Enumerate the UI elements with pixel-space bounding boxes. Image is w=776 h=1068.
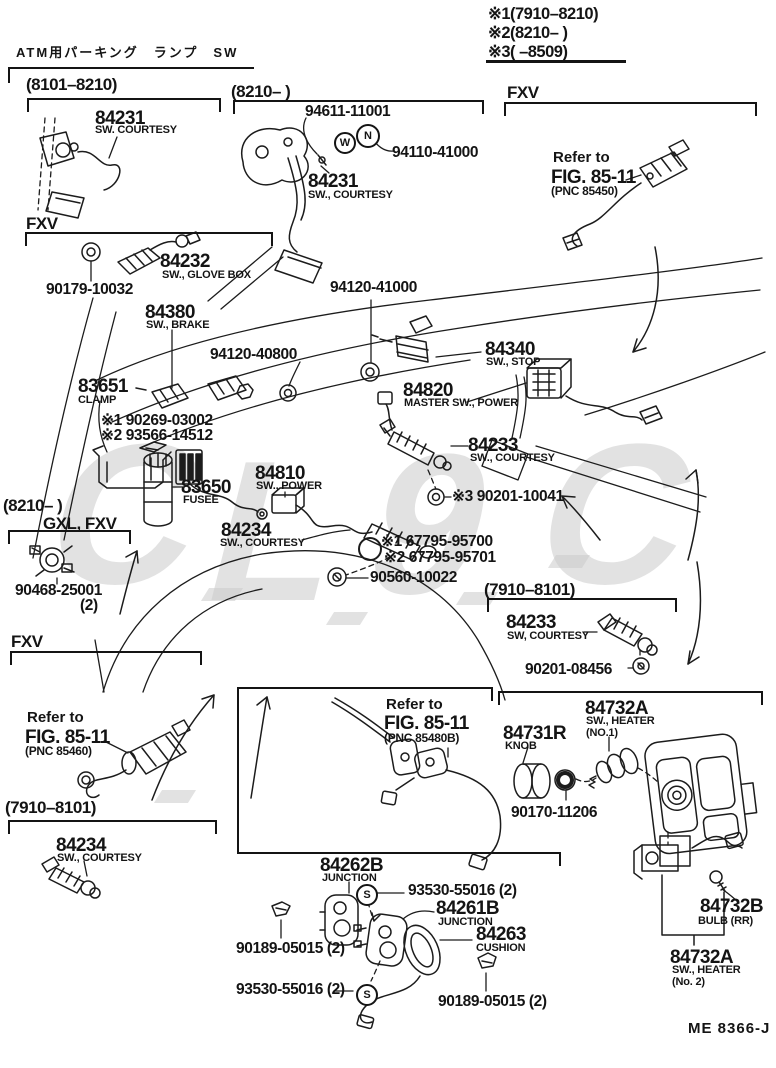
drawing-clamp-fusee	[93, 442, 267, 526]
section-bracket	[504, 102, 757, 116]
section-bracket	[487, 598, 677, 612]
refer-to-pnc: (PNC 85450)	[551, 185, 618, 197]
label-94120-40800: 94120-40800	[210, 347, 297, 363]
section-7910-right: (7910–8101)	[484, 581, 575, 598]
refer-to-pnc: (PNC 85480B)	[384, 732, 459, 744]
section-bracket	[25, 232, 273, 246]
label-83650-desc: FUSEE	[183, 494, 219, 507]
label-93530-bottom: 93530-55016 (2)	[236, 982, 345, 998]
refer-to-text: Refer to	[27, 710, 84, 725]
section-bracket	[10, 651, 202, 665]
drawing-stop-switch-84340	[372, 316, 432, 362]
refer-to-pnc: (PNC 85460)	[25, 745, 92, 757]
screw-symbol-s1: S	[356, 884, 378, 906]
label-84234-early-desc: SW., COURTESY	[57, 852, 142, 865]
label-67795-95701: ※2 67795-95701	[384, 550, 496, 566]
drawing-master-switch-84820	[527, 359, 662, 424]
label-84731r-desc: KNOB	[505, 740, 537, 753]
car-body-lines	[33, 247, 765, 700]
section-8210-gxl: (8210– )	[3, 497, 62, 514]
label-90170-11206: 90170-11206	[511, 805, 597, 821]
label-90560-10022: 90560-10022	[370, 570, 457, 586]
refer-to-text: Refer to	[386, 697, 443, 712]
label-84810-desc: SW., POWER	[256, 480, 322, 493]
label-90201-08456: 90201-08456	[525, 662, 612, 678]
nut-symbol-n: N	[356, 124, 380, 148]
section-gxl-fxv: GXL, FXV	[43, 515, 116, 532]
label-90189-left: 90189-05015 (2)	[236, 941, 345, 957]
label-90468-qty: (2)	[80, 598, 98, 614]
section-fxv-bottom: FXV	[11, 633, 43, 650]
label-84732a-no2-desc2: (No. 2)	[672, 976, 705, 989]
section-fxv-left: FXV	[26, 215, 58, 232]
label-84263-desc: CUSHION	[476, 942, 525, 955]
section-fxv-topright: FXV	[507, 84, 539, 101]
section-bracket	[237, 687, 493, 701]
label-84732a-no1-desc: SW., HEATER	[586, 715, 655, 728]
label-84233-mid-desc: SW., COURTESY	[470, 452, 555, 465]
section-8210-top: (8210– )	[231, 83, 290, 100]
section-bracket-edge	[237, 687, 239, 853]
label-84262b-desc: JUNCTION	[322, 872, 377, 885]
doc-code: ME 8366-J	[688, 1020, 770, 1037]
parts-diagram-page: C L 9 C	[0, 0, 776, 1068]
label-84380-desc: SW., BRAKE	[146, 319, 209, 332]
section-8101-8210: (8101–8210)	[26, 76, 117, 93]
section-7910-bottom: (7910–8101)	[5, 799, 96, 816]
page-title: ATM用パーキング ランプ SW	[16, 46, 238, 59]
label-67795-95700: ※1 67795-95700	[381, 534, 493, 550]
drawing-switch-84231-door	[40, 132, 120, 218]
label-84231-door-desc: SW. COURTESY	[95, 124, 177, 137]
label-94120-41000: 94120-41000	[330, 280, 417, 296]
label-84233-early-desc: SW, COURTESY	[507, 630, 589, 643]
legend-line-1: ※1(7910–8210)	[488, 6, 598, 23]
drawing-sensor-90468	[30, 546, 74, 576]
label-84820-desc: MASTER SW., POWER	[404, 397, 518, 410]
section-bracket	[237, 852, 561, 866]
drawing-pedal-84231	[242, 128, 326, 283]
refer-to-text: Refer to	[553, 150, 610, 165]
label-93530-top: 93530-55016 (2)	[408, 883, 517, 899]
label-84340-desc: SW., STOP	[486, 356, 540, 369]
label-90179-10032: 90179-10032	[46, 282, 133, 298]
label-84232-desc: SW., GLOVE BOX	[162, 269, 251, 282]
label-84732b: 84732B	[700, 897, 763, 916]
label-90189-right: 90189-05015 (2)	[438, 994, 547, 1010]
label-93566-14512: ※2 93566-14512	[101, 428, 213, 444]
label-84231-pedal-desc: SW., COURTESY	[308, 189, 393, 202]
label-83651-desc: CLAMP	[78, 394, 116, 407]
nut-symbol-w: W	[334, 132, 356, 154]
section-bracket	[8, 820, 217, 834]
label-84732a-no2-desc: SW., HEATER	[672, 964, 741, 977]
screw-symbol-s2: S	[356, 984, 378, 1006]
label-90201-10041: ※3 90201-10041	[452, 489, 564, 505]
label-84732b-desc: BULB (RR)	[698, 915, 753, 928]
legend-line-2: ※2(8210– )	[488, 25, 567, 42]
label-94611-11001: 94611-11001	[305, 104, 390, 120]
label-84732a-no1-desc2: (NO.1)	[586, 727, 618, 740]
label-94110-41000: 94110-41000	[392, 145, 478, 161]
legend-line-3: ※3( –8509)	[488, 44, 567, 61]
label-84234-mid-desc: SW., COURTESY	[220, 537, 305, 550]
